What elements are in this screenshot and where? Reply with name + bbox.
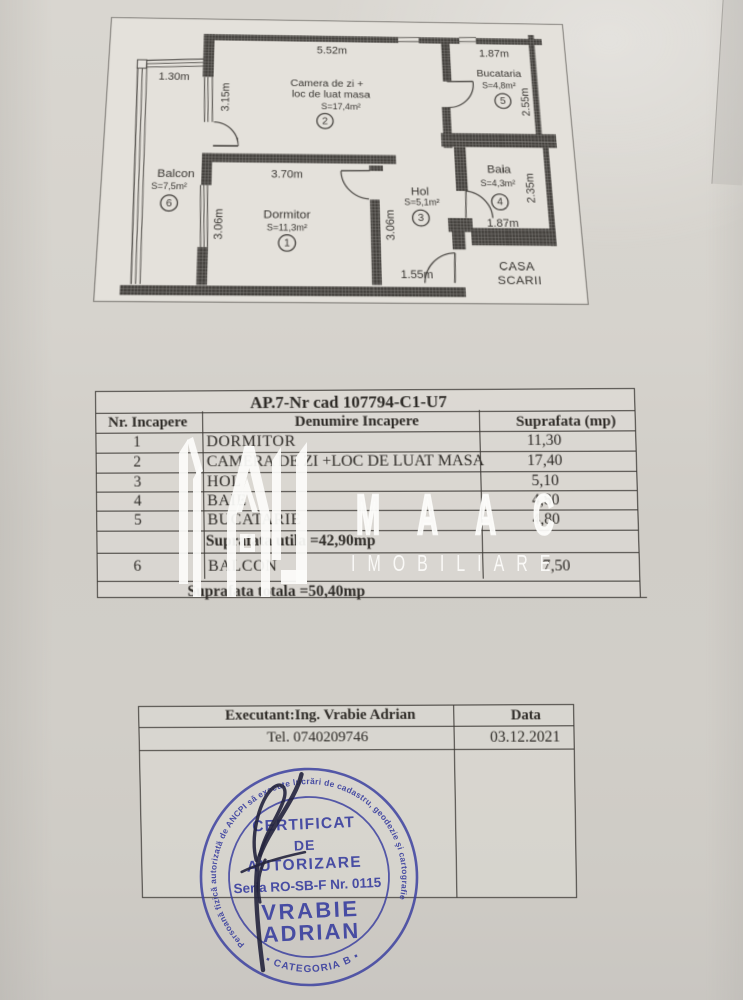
svg-text:1.55m: 1.55m xyxy=(401,269,434,281)
svg-text:Balcon: Balcon xyxy=(157,168,195,181)
svg-text:IMOBILIARE: IMOBILIARE xyxy=(351,551,562,576)
svg-text:Dormitor: Dormitor xyxy=(263,208,311,221)
svg-text:Camera de zi +: Camera de zi + xyxy=(290,78,363,90)
svg-text:1: 1 xyxy=(284,238,290,250)
svg-text:1.30m: 1.30m xyxy=(158,72,189,83)
svg-text:6: 6 xyxy=(166,198,172,210)
svg-text:▪ CATEGORIA B ▪: ▪ CATEGORIA B ▪ xyxy=(263,950,362,977)
svg-text:S=11,3m²: S=11,3m² xyxy=(267,222,308,233)
svg-text:S=17,4m²: S=17,4m² xyxy=(321,101,361,111)
svg-text:2.35m: 2.35m xyxy=(524,173,538,203)
svg-text:Baia: Baia xyxy=(487,164,513,177)
svg-text:CASA: CASA xyxy=(499,260,536,273)
svg-text:S=4,3m²: S=4,3m² xyxy=(480,178,516,189)
svg-text:3: 3 xyxy=(418,213,424,225)
svg-text:S=5,1m²: S=5,1m² xyxy=(404,197,440,208)
svg-text:1.87m: 1.87m xyxy=(487,218,519,230)
svg-text:5.52m: 5.52m xyxy=(317,46,347,57)
svg-text:3.15m: 3.15m xyxy=(220,83,232,112)
svg-text:5: 5 xyxy=(500,96,506,107)
svg-text:2: 2 xyxy=(322,116,328,127)
svg-text:SCARII: SCARII xyxy=(497,274,542,288)
svg-text:loc de luat masa: loc de luat masa xyxy=(292,89,371,101)
svg-text:Bucataria: Bucataria xyxy=(476,69,522,80)
svg-text:3.06m: 3.06m xyxy=(213,209,226,240)
svg-text:S=4,8m²: S=4,8m² xyxy=(482,80,517,90)
svg-text:2.55m: 2.55m xyxy=(519,88,533,116)
svg-text:S=7,5m²: S=7,5m² xyxy=(151,181,187,192)
svg-text:3.70m: 3.70m xyxy=(271,169,303,181)
svg-text:MAAC: MAAC xyxy=(356,482,590,546)
svg-text:ADRIAN: ADRIAN xyxy=(262,918,361,947)
svg-text:3.06m: 3.06m xyxy=(385,210,398,241)
svg-text:1.87m: 1.87m xyxy=(479,49,510,60)
